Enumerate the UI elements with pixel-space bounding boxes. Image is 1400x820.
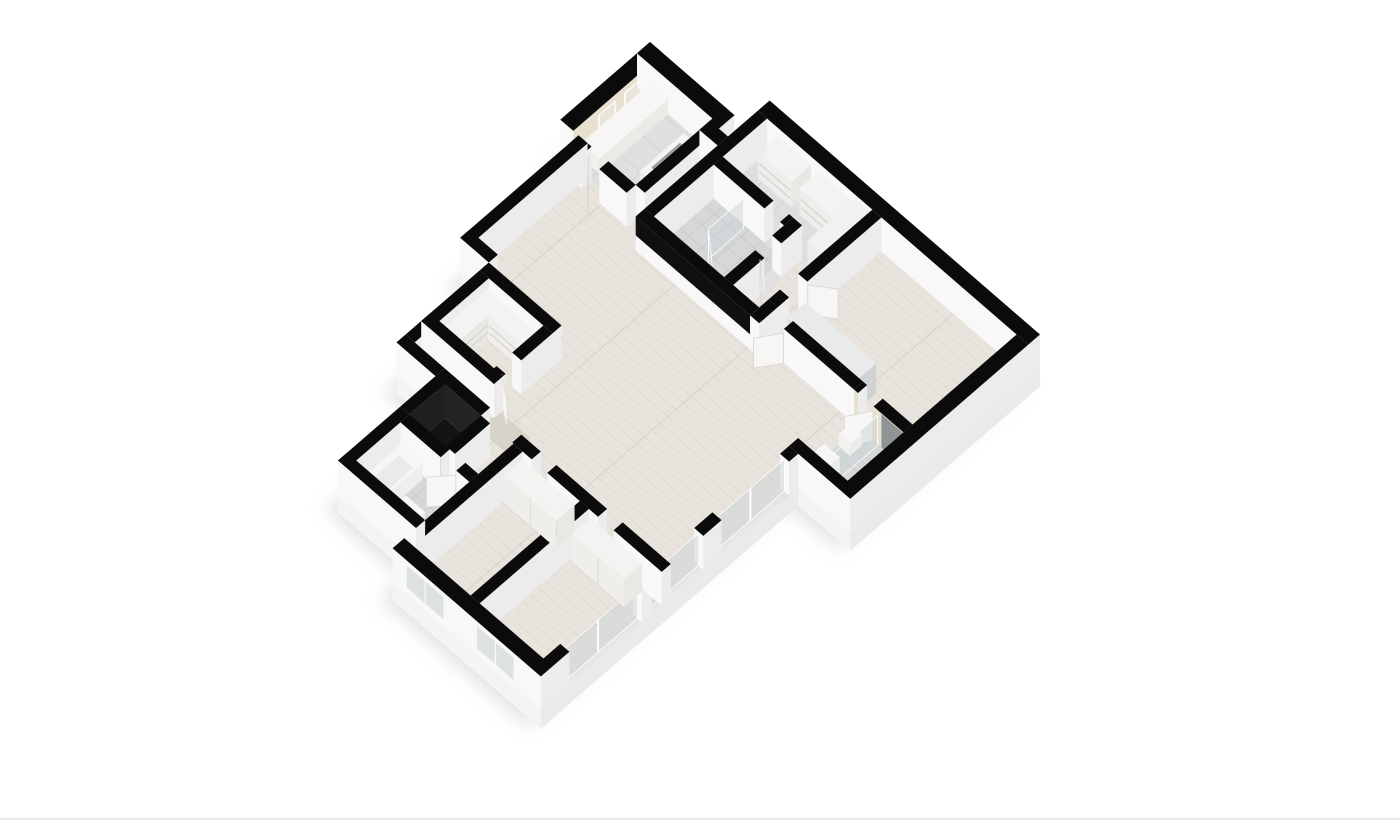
wardrobe-door-line <box>598 557 599 584</box>
window-mullion <box>597 620 599 654</box>
floor-plan-3d-render <box>0 0 1400 820</box>
floor-plan-page: 3D isometric apartment floor plan render <box>0 0 1400 820</box>
window-mullion <box>495 642 496 665</box>
door-living <box>754 333 784 368</box>
window-mullion <box>749 488 751 522</box>
window-mullion <box>425 581 426 604</box>
wardrobe-door-line <box>530 499 531 526</box>
